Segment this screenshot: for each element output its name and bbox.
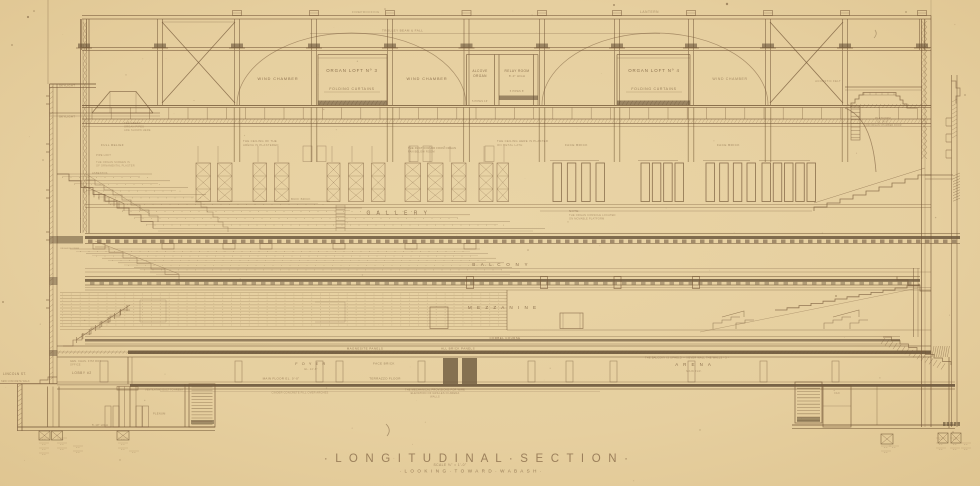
- svg-text:ASBESTOS: ASBESTOS: [92, 171, 108, 175]
- svg-text:TERRAZZO FLOOR: TERRAZZO FLOOR: [369, 377, 401, 381]
- svg-text:5 PIPES 8': 5 PIPES 8': [510, 89, 525, 93]
- svg-text:ALL BRICK PANELS: ALL BRICK PANELS: [441, 347, 475, 351]
- svg-text:THE GREAT: THE GREAT: [124, 121, 141, 125]
- svg-text:4'-6": 4'-6": [884, 447, 889, 449]
- svg-text:3'-0": 3'-0": [60, 444, 65, 446]
- svg-text:3'-0": 3'-0": [121, 449, 126, 451]
- svg-text:4'-6": 4'-6": [892, 447, 897, 449]
- svg-text:5'-10" HIGH: 5'-10" HIGH: [92, 423, 108, 427]
- svg-text:FAN BELOW ROOM: FAN BELOW ROOM: [408, 150, 435, 154]
- svg-text:ELEVATION OF GRILLES IN ARENA: ELEVATION OF GRILLES IN ARENA: [411, 391, 460, 395]
- svg-text:FULL RELIEF: FULL RELIEF: [101, 143, 124, 147]
- svg-text:MAIN FLR.: MAIN FLR.: [686, 369, 702, 373]
- svg-text:ON METAL LATH: ON METAL LATH: [497, 143, 523, 147]
- svg-text:NEW CONCRETE WALK: NEW CONCRETE WALK: [1, 380, 30, 383]
- svg-text:PLENUM: PLENUM: [153, 412, 166, 416]
- svg-text:FACE BRICK: FACE BRICK: [373, 362, 395, 366]
- svg-text:3'-0": 3'-0": [121, 444, 126, 446]
- svg-text:ORGAN PIPES: ORGAN PIPES: [124, 125, 144, 129]
- svg-text:3'-0": 3'-0": [42, 444, 47, 446]
- svg-text:TROLLEY BEAM & FALL: TROLLEY BEAM & FALL: [382, 29, 423, 33]
- svg-text:FAN: FAN: [834, 392, 839, 395]
- svg-text:· L O N G I T U D I N A L · S: · L O N G I T U D I N A L · S E C T I O …: [324, 453, 630, 465]
- svg-text:SCALE ⅛" = 1'-0": SCALE ⅛" = 1'-0": [433, 463, 467, 467]
- svg-text:RELAY ROOM: RELAY ROOM: [505, 69, 530, 73]
- svg-text:MAGNESITE PANELS: MAGNESITE PANELS: [347, 347, 384, 351]
- svg-text:A R E N A: A R E N A: [675, 362, 713, 367]
- svg-text:4'-6": 4'-6": [939, 449, 944, 451]
- svg-text:ARE SHOWN HERE: ARE SHOWN HERE: [124, 128, 151, 132]
- svg-text:WALLS: WALLS: [430, 395, 440, 399]
- svg-text:3'-0": 3'-0": [121, 439, 126, 441]
- svg-text:M E Z Z A N I N E: M E Z Z A N I N E: [468, 305, 538, 310]
- svg-text:OFFICE: OFFICE: [70, 363, 81, 367]
- svg-text:4'-6": 4'-6": [939, 439, 944, 441]
- svg-text:THE ORGAN CONSOLE LOCATED: THE ORGAN CONSOLE LOCATED: [569, 213, 616, 217]
- svg-text:WIND CHAMBER: WIND CHAMBER: [258, 77, 299, 81]
- svg-text:LINCOLN ST.: LINCOLN ST.: [3, 372, 27, 376]
- svg-text:SKYLIGHT: SKYLIGHT: [59, 115, 75, 119]
- svg-text:ON MOVABLE PLATFORM: ON MOVABLE PLATFORM: [569, 217, 604, 221]
- svg-text:ORGAN: ORGAN: [473, 74, 487, 78]
- svg-text:· L O O K I N G · T O W A R D: · L O O K I N G · T O W A R D · W A B A …: [399, 469, 542, 474]
- svg-text:EL. 14'-6": EL. 14'-6": [304, 367, 317, 371]
- svg-text:THE ORGAN SCREEN IS: THE ORGAN SCREEN IS: [96, 160, 130, 164]
- svg-text:ALCOVE: ALCOVE: [472, 69, 487, 73]
- svg-text:ORGAN LOFT Nº 4: ORGAN LOFT Nº 4: [628, 68, 680, 73]
- svg-text:GEN. CHAS. FITZ ROY: GEN. CHAS. FITZ ROY: [70, 359, 101, 363]
- svg-text:PLATFORM: PLATFORM: [875, 116, 891, 120]
- svg-text:BUFF BRICK: BUFF BRICK: [291, 197, 311, 201]
- svg-text:3'-0": 3'-0": [60, 439, 65, 441]
- svg-text:PIPE LOFT: PIPE LOFT: [96, 153, 111, 157]
- svg-text:WIND CHAMBER: WIND CHAMBER: [407, 77, 448, 81]
- svg-text:G A L L E R Y: G A L L E R Y: [367, 211, 430, 217]
- svg-text:FACE BRICK: FACE BRICK: [717, 143, 740, 147]
- svg-text:3'-0": 3'-0": [76, 452, 81, 454]
- svg-text:CORBEL COURSE: CORBEL COURSE: [489, 336, 520, 340]
- svg-text:ACOUSTIC FELT: ACOUSTIC FELT: [815, 79, 841, 83]
- svg-text:B A L C O N Y: B A L C O N Y: [472, 262, 529, 267]
- svg-text:8'-0" HIGH: 8'-0" HIGH: [509, 74, 525, 78]
- svg-text:F O Y E R: F O Y E R: [295, 362, 327, 366]
- svg-text:LOBBY #2: LOBBY #2: [72, 371, 92, 375]
- svg-text:ORGAN LOFT Nº 3: ORGAN LOFT Nº 3: [326, 68, 378, 73]
- svg-text:4'-6": 4'-6": [953, 444, 958, 446]
- svg-text:VENTILATING DUCT TO ARENA: VENTILATING DUCT TO ARENA: [145, 389, 183, 392]
- svg-text:ORGAN BLOWER: ORGAN BLOWER: [60, 247, 80, 250]
- svg-text:4'-6": 4'-6": [953, 439, 958, 441]
- svg-text:THE MECHANICAL PROVISIONS FOR: THE MECHANICAL PROVISIONS FOR WIRE: [405, 388, 465, 392]
- svg-text:FOR ORGAN CHAMBER DOOR: FOR ORGAN CHAMBER DOOR: [864, 124, 901, 127]
- svg-text:4'-6": 4'-6": [964, 449, 969, 451]
- svg-text:FOLDING CURTAINS: FOLDING CURTAINS: [631, 87, 676, 91]
- svg-text:ARENA IS PLASTERED: ARENA IS PLASTERED: [243, 143, 279, 147]
- svg-text:3'-0": 3'-0": [60, 449, 65, 451]
- svg-text:3'-0": 3'-0": [76, 447, 81, 449]
- svg-text:4'-6": 4'-6": [953, 449, 958, 451]
- svg-text:4'-6": 4'-6": [964, 444, 969, 446]
- svg-text:WIND CHAMBER: WIND CHAMBER: [712, 77, 747, 81]
- svg-text:4'-6": 4'-6": [939, 444, 944, 446]
- svg-text:THE BALCONY IS UPHELD — NEVER: THE BALCONY IS UPHELD — NEVER WALL THE W…: [645, 356, 729, 360]
- svg-text:MAIN FLOOR EL. 0'-0": MAIN FLOOR EL. 0'-0": [263, 377, 300, 381]
- svg-text:4'-6": 4'-6": [884, 452, 889, 454]
- svg-text:3'-0": 3'-0": [42, 449, 47, 451]
- svg-text:SKYLIGHT: SKYLIGHT: [59, 84, 75, 88]
- svg-text:3'-0": 3'-0": [42, 454, 47, 456]
- svg-text:5 PIPES 16': 5 PIPES 16': [472, 99, 488, 103]
- svg-text:OF ORNAMENTAL PLASTER: OF ORNAMENTAL PLASTER: [96, 164, 135, 168]
- svg-text:FOLDING CURTAINS: FOLDING CURTAINS: [329, 87, 374, 91]
- svg-text:NOTE:: NOTE:: [569, 209, 580, 213]
- svg-text:CINDER CONCRETE FILL OVER ARCH: CINDER CONCRETE FILL OVER ARCHES: [272, 391, 329, 395]
- svg-text:LANTERN: LANTERN: [640, 10, 659, 14]
- svg-text:3'-0": 3'-0": [132, 452, 137, 454]
- svg-text:3'-0": 3'-0": [42, 439, 47, 441]
- svg-text:FACE BRICK: FACE BRICK: [565, 143, 588, 147]
- svg-text:FIREPROOFING: FIREPROOFING: [352, 10, 380, 14]
